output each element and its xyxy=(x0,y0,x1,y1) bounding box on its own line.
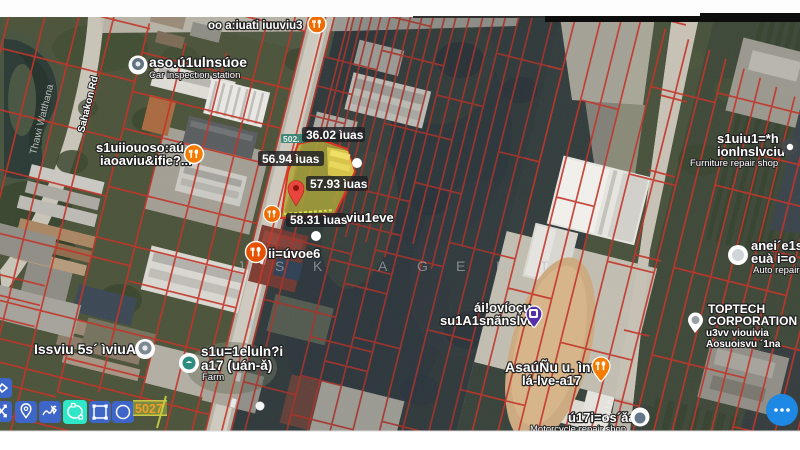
svg-text:36.02 ìuas: 36.02 ìuas xyxy=(306,128,364,142)
svg-text:oo a:iuati iuuviu3: oo a:iuati iuuviu3 xyxy=(208,20,303,32)
svg-text:E: E xyxy=(456,258,465,274)
svg-text:iaoaviu&ifie?...: iaoaviu&ifie?... xyxy=(100,153,192,168)
svg-text:56.94 ìuas: 56.94 ìuas xyxy=(262,152,320,166)
svg-text:502.: 502. xyxy=(283,134,300,144)
svg-text:N: N xyxy=(496,258,506,274)
svg-text:viu1eve: viu1eve xyxy=(346,210,394,225)
svg-text:CORPORATION C: CORPORATION C xyxy=(708,314,800,328)
svg-text:a17 (uán-ǎ): a17 (uán-ǎ) xyxy=(201,358,272,373)
svg-text:Issviu 5s´ ìviuAm: Issviu 5s´ ìviuAm xyxy=(34,341,148,357)
svg-text:ii=úvoe6: ii=úvoe6 xyxy=(268,246,320,261)
svg-text:s1u=1eluln?i: s1u=1eluln?i xyxy=(201,344,283,359)
svg-text:Auto repair: Auto repair xyxy=(753,265,799,276)
svg-text:su1A1snãnslve: su1A1snãnslve xyxy=(440,313,535,328)
svg-text:Furniture repair shop: Furniture repair shop xyxy=(690,158,778,169)
svg-text:aso.ú1ulnsúoe: aso.ú1ulnsúoe xyxy=(149,54,247,70)
svg-text:Aosuoisvu ´1na: Aosuoisvu ´1na xyxy=(706,339,781,350)
svg-text:euà i=o: euà i=o xyxy=(751,251,796,266)
svg-text:J: J xyxy=(237,258,244,274)
svg-text:Car inspection station: Car inspection station xyxy=(149,70,240,81)
svg-text:Farm: Farm xyxy=(202,372,224,383)
svg-text:57.93 ìuas: 57.93 ìuas xyxy=(310,177,368,191)
svg-text:ionlnslvciu: ionlnslvciu xyxy=(717,144,785,159)
svg-text:lá-lve-a17: lá-lve-a17 xyxy=(522,373,581,388)
svg-text:A: A xyxy=(378,258,388,274)
svg-text:u3vv viouivia: u3vv viouivia xyxy=(706,328,769,339)
svg-text:5027: 5027 xyxy=(135,402,163,416)
svg-text:58.31 ìuas: 58.31 ìuas xyxy=(290,213,348,227)
svg-text:T: T xyxy=(540,258,549,274)
svg-text:G: G xyxy=(417,258,428,274)
